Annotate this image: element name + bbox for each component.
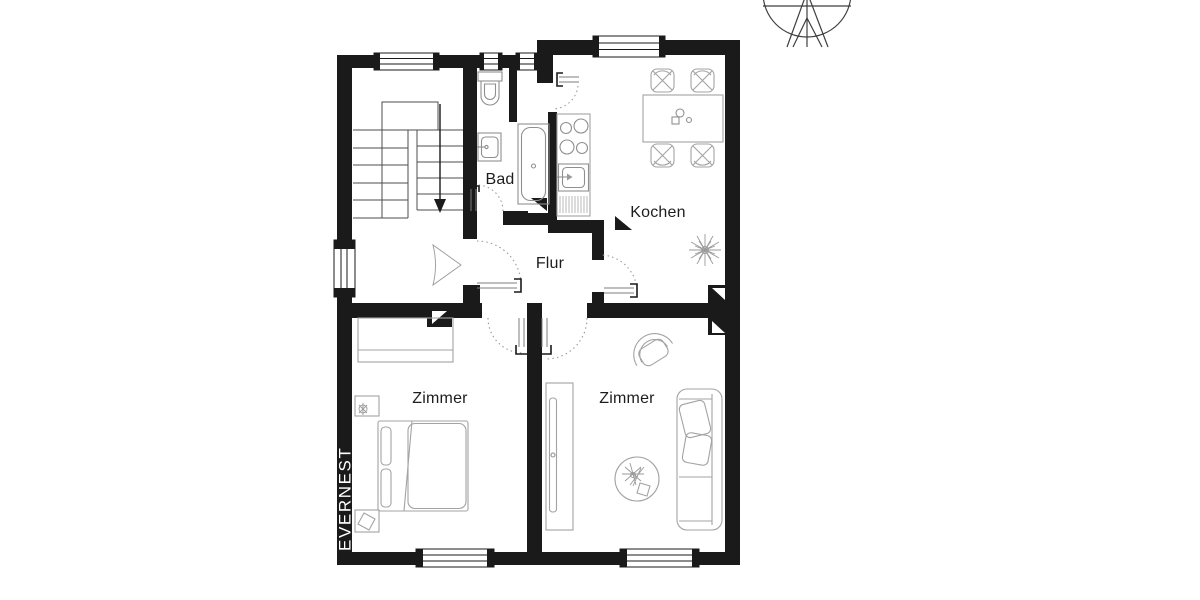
plant	[689, 234, 721, 266]
stair-direction-arrow	[434, 104, 446, 213]
window-zimmer-left-bottom	[416, 549, 494, 567]
entrance-door	[433, 241, 521, 292]
room-label-bad: Bad	[485, 171, 514, 188]
toilet	[478, 72, 502, 105]
armchair	[626, 326, 676, 372]
pillow	[381, 469, 391, 507]
bad-kitchen-door	[553, 73, 579, 109]
dining-table	[643, 95, 723, 142]
room-label-zimmer-right: Zimmer	[599, 390, 655, 407]
sideboard	[546, 383, 573, 530]
window-bad-small-1	[480, 53, 502, 70]
chair	[651, 144, 674, 167]
chair	[691, 69, 714, 92]
zimmer-right-furniture	[546, 326, 722, 530]
chair	[691, 144, 714, 167]
nightstand	[355, 396, 379, 416]
nightstand	[355, 510, 379, 532]
sofa	[677, 389, 722, 530]
double-bed	[378, 421, 468, 511]
stairs	[353, 102, 463, 218]
pillow	[381, 427, 391, 465]
kochen-fixtures	[557, 69, 723, 266]
cushion	[678, 399, 711, 438]
floor-plan-page: Bad Kochen Flur Zimmer Zimmer EVERNEST	[0, 0, 1200, 600]
floor-plan-drawing: Bad Kochen Flur Zimmer Zimmer EVERNEST	[0, 0, 1200, 600]
window-kitchen-top	[593, 36, 665, 57]
zimmer-right-door	[538, 318, 587, 359]
cushion	[682, 432, 713, 466]
window-stairwell-left	[334, 240, 355, 297]
window-bad-small-2	[516, 53, 538, 70]
brand-logo: EVERNEST	[336, 447, 355, 551]
zimmer-left-door	[488, 318, 528, 354]
room-label-flur: Flur	[536, 255, 565, 272]
window-zimmer-right-bottom	[620, 549, 699, 567]
bathtub	[518, 124, 549, 204]
chair	[651, 69, 674, 92]
wash-basin	[477, 133, 501, 161]
round-rug	[615, 457, 659, 501]
kitchen-door	[600, 255, 637, 297]
window-stairwell-top	[374, 53, 439, 70]
compass-icon	[763, 0, 851, 47]
zimmer-left-furniture	[355, 318, 468, 532]
room-label-zimmer-left: Zimmer	[412, 390, 468, 407]
room-label-kochen: Kochen	[630, 204, 685, 221]
kitchen-counter	[557, 114, 590, 216]
